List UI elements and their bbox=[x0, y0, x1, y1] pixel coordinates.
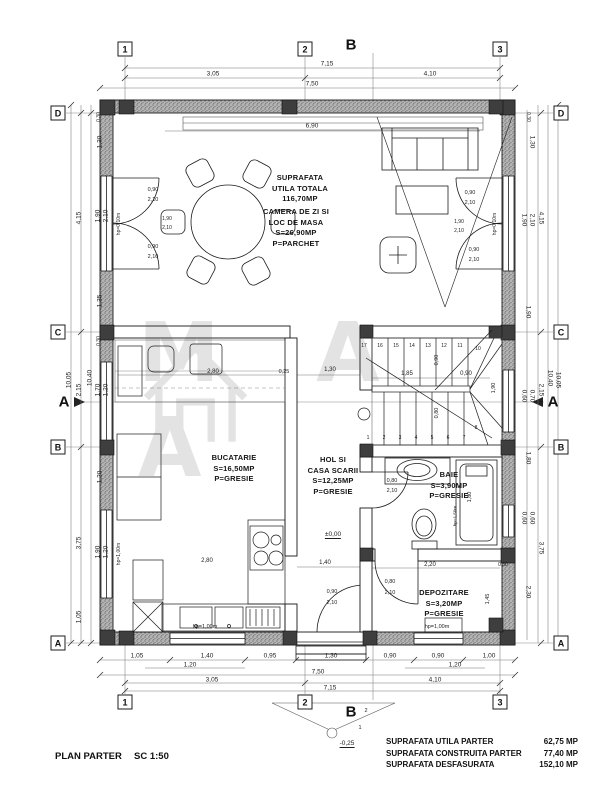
grid-marker-D: D bbox=[51, 106, 66, 121]
dim-label: 3,75 bbox=[76, 537, 83, 550]
dim-label: 1,20 bbox=[103, 546, 110, 559]
grid-marker-B: B bbox=[51, 440, 66, 455]
grid-marker-2: 2 bbox=[298, 42, 313, 57]
dim-label: 2,10 bbox=[162, 225, 172, 231]
dim-label: 2,30 bbox=[525, 586, 532, 599]
dim-label: 13 bbox=[425, 343, 431, 349]
dim-label: 0,90 bbox=[460, 371, 472, 377]
dim-label: 0,90 bbox=[148, 244, 159, 250]
room-label-hall: HOL SICASA SCARIIS=12,25MPP=GRESIE bbox=[308, 455, 359, 497]
dim-label: 2,10 bbox=[327, 600, 338, 606]
dim-label: 1,20 bbox=[449, 662, 462, 669]
dim-label: 6,90 bbox=[306, 123, 319, 130]
grid-marker-C: C bbox=[51, 325, 66, 340]
dim-label: 3,05 bbox=[206, 677, 219, 684]
dim-label: 1,00 bbox=[483, 653, 496, 660]
dim-label: 2,10 bbox=[387, 488, 398, 494]
dim-label: 0,90 bbox=[327, 589, 338, 595]
dim-label: 7,15 bbox=[324, 685, 337, 692]
dim-label: 16 bbox=[377, 343, 383, 349]
summary-row: SUPRAFATA DESFASURATA 152,10 MP bbox=[386, 759, 578, 771]
dim-label: 0,30 bbox=[96, 336, 102, 346]
plan-title: PLAN PARTER bbox=[55, 751, 122, 762]
dim-label: 2,10 bbox=[465, 200, 476, 206]
dim-label: 11 bbox=[457, 343, 462, 349]
dim-label: 4,15 bbox=[538, 212, 545, 225]
dim-label: 0,90 bbox=[465, 190, 476, 196]
dim-label: 1,05 bbox=[131, 653, 144, 660]
dim-label: 1,85 bbox=[401, 371, 413, 377]
dim-label: 4 bbox=[415, 435, 418, 441]
dim-label: 2,10 bbox=[103, 210, 110, 223]
dim-label: 0,90 bbox=[469, 247, 480, 253]
dim-label: 2 bbox=[364, 708, 367, 714]
dim-label: hp=1,50m bbox=[453, 506, 458, 526]
dim-label: 1,30 bbox=[324, 367, 336, 373]
dim-label: 3,05 bbox=[207, 71, 220, 78]
summary-row: SUPRAFATA UTILA PARTER 62,75 MP bbox=[386, 736, 578, 748]
dim-label: 7,15 bbox=[321, 61, 334, 68]
summary-label: SUPRAFATA CONSTRUITA PARTER bbox=[386, 748, 522, 760]
dim-label: 0,80 bbox=[387, 478, 398, 484]
grid-marker-2: 2 bbox=[298, 695, 313, 710]
grid-marker-B: B bbox=[554, 440, 569, 455]
dim-label: 10,05 bbox=[555, 372, 562, 388]
dim-label: hp=1,00m bbox=[116, 543, 122, 565]
dim-label: 1,90 bbox=[162, 216, 172, 222]
floorplan-canvas: M A A SUPRAFATAUTILA TOTALA116,70MPCAMER… bbox=[0, 0, 615, 785]
dim-label: 0,60 bbox=[521, 512, 528, 525]
dim-label: 1,30 bbox=[97, 136, 104, 149]
grid-marker-1: 1 bbox=[118, 42, 133, 57]
dim-label: 1,90 bbox=[95, 210, 102, 223]
dim-label: 10 bbox=[475, 346, 481, 352]
dim-label: 7,50 bbox=[312, 669, 325, 676]
dim-label: 1,30 bbox=[325, 653, 338, 660]
dim-label: 5 bbox=[431, 435, 434, 441]
dim-label: 2,80 bbox=[207, 369, 219, 375]
dim-label: 1,90 bbox=[95, 546, 102, 559]
summary-value: 152,10 MP bbox=[539, 759, 578, 771]
dim-label: hp=1,00m bbox=[425, 624, 450, 630]
dim-label: 1 bbox=[367, 435, 370, 441]
dim-label: 10,05 bbox=[66, 372, 73, 388]
dim-label: 2,10 bbox=[148, 197, 159, 203]
room-label-living: CAMERA DE ZI SILOC DE MASAS=26,90MPP=PAR… bbox=[263, 207, 329, 249]
dim-label: 4,15 bbox=[76, 212, 83, 225]
dim-label: 0,25 bbox=[279, 369, 290, 375]
area-summary: SUPRAFATA UTILA PARTER 62,75 MP SUPRAFAT… bbox=[386, 736, 578, 771]
dim-label: 0,30 bbox=[498, 562, 508, 568]
dim-label: ±0,00 bbox=[325, 531, 341, 539]
dim-label: 2,10 bbox=[529, 214, 536, 227]
dim-label: 10,40 bbox=[547, 370, 554, 386]
dim-label: 1,45 bbox=[485, 594, 491, 605]
dim-label: 0,30 bbox=[525, 112, 531, 122]
dim-label: 10,40 bbox=[87, 370, 94, 386]
summary-value: 62,75 MP bbox=[544, 736, 578, 748]
dim-label: 1,20 bbox=[97, 471, 104, 484]
dim-label: -0,25 bbox=[340, 740, 355, 748]
grid-marker-A: A bbox=[59, 394, 70, 411]
dim-label: 2 bbox=[383, 435, 386, 441]
dim-label: hp=1,00m bbox=[193, 624, 218, 630]
grid-marker-A: A bbox=[51, 636, 66, 651]
dim-label: 0,80 bbox=[434, 408, 440, 419]
dim-label: 0,80 bbox=[385, 579, 396, 585]
grid-marker-A: A bbox=[548, 394, 559, 411]
dim-label: 3 bbox=[399, 435, 402, 441]
dim-label: hp=0,10m bbox=[116, 213, 122, 235]
grid-marker-A: A bbox=[554, 636, 569, 651]
dim-label: 3,75 bbox=[538, 542, 545, 555]
grid-marker-B: B bbox=[346, 704, 357, 721]
room-label-storage: DEPOZITARES=3,20MPP=GRESIE bbox=[419, 588, 469, 620]
summary-row: SUPRAFATA CONSTRUITA PARTER 77,40 MP bbox=[386, 748, 578, 760]
dim-label: 0,30 bbox=[96, 112, 102, 122]
dim-label: 0,60 bbox=[529, 512, 536, 525]
grid-marker-1: 1 bbox=[118, 695, 133, 710]
dim-label: 1,80 bbox=[467, 492, 473, 503]
room-label-total-area: SUPRAFATAUTILA TOTALA116,70MP bbox=[272, 173, 328, 205]
grid-marker-3: 3 bbox=[493, 695, 508, 710]
dim-label: 4,10 bbox=[429, 677, 442, 684]
dim-label: 1,90 bbox=[491, 383, 497, 394]
room-label-bathroom: BAIES=3,90MPP=GRESIE bbox=[429, 470, 468, 502]
dim-label: 0,95 bbox=[264, 653, 277, 660]
dim-label: 2,80 bbox=[201, 558, 213, 564]
dim-label: 1,05 bbox=[76, 611, 83, 624]
dim-label: 2,10 bbox=[469, 257, 480, 263]
dim-label: 1,90 bbox=[454, 219, 464, 225]
dim-label: 15 bbox=[393, 343, 399, 349]
grid-marker-B: B bbox=[346, 37, 357, 54]
dim-label: 1,70 bbox=[95, 384, 102, 397]
dim-label: 2,15 bbox=[76, 384, 83, 397]
dim-label: 6 bbox=[447, 435, 450, 441]
dim-label: 0,90 bbox=[148, 187, 159, 193]
dim-label: 1 bbox=[358, 725, 361, 731]
dim-label: hp=0,10m bbox=[492, 213, 498, 235]
summary-label: SUPRAFATA UTILA PARTER bbox=[386, 736, 493, 748]
dim-label: 12 bbox=[441, 343, 447, 349]
dim-label: 1,40 bbox=[201, 653, 214, 660]
dim-label: 1,20 bbox=[103, 384, 110, 397]
dim-label: 8 bbox=[475, 425, 478, 431]
dim-label: 0,90 bbox=[432, 653, 445, 660]
dim-label: 1,80 bbox=[525, 452, 532, 465]
dim-label: 1,20 bbox=[184, 662, 197, 669]
grid-marker-D: D bbox=[554, 106, 569, 121]
dim-label: 2,15 bbox=[538, 384, 545, 397]
dim-label: 0,90 bbox=[434, 355, 440, 366]
dim-label: 2,10 bbox=[148, 254, 159, 260]
dim-label: 17 bbox=[361, 343, 367, 349]
dim-label: 1,35 bbox=[97, 295, 104, 308]
dim-label: 4,10 bbox=[424, 71, 437, 78]
summary-label: SUPRAFATA DESFASURATA bbox=[386, 759, 494, 771]
plan-scale: SC 1:50 bbox=[134, 751, 169, 762]
dim-label: 14 bbox=[409, 343, 415, 349]
dim-label: 1,90 bbox=[525, 306, 532, 319]
dim-label: 7 bbox=[463, 435, 466, 441]
dim-label: 1,40 bbox=[319, 560, 331, 566]
dim-label: 1,30 bbox=[529, 136, 536, 149]
grid-marker-C: C bbox=[554, 325, 569, 340]
dim-label: 0,70 bbox=[529, 390, 536, 403]
dim-label: 0,60 bbox=[521, 390, 528, 403]
dim-label: 7,50 bbox=[306, 81, 319, 88]
summary-value: 77,40 MP bbox=[544, 748, 578, 760]
grid-marker-3: 3 bbox=[493, 42, 508, 57]
dim-label: 2,10 bbox=[454, 228, 464, 234]
dim-label: 2,20 bbox=[424, 562, 436, 568]
dim-label: 2,10 bbox=[385, 590, 396, 596]
dim-label: 0,90 bbox=[384, 653, 397, 660]
dim-label: 1,90 bbox=[521, 214, 528, 227]
room-label-kitchen: BUCATARIES=16,50MPP=GRESIE bbox=[212, 453, 257, 485]
